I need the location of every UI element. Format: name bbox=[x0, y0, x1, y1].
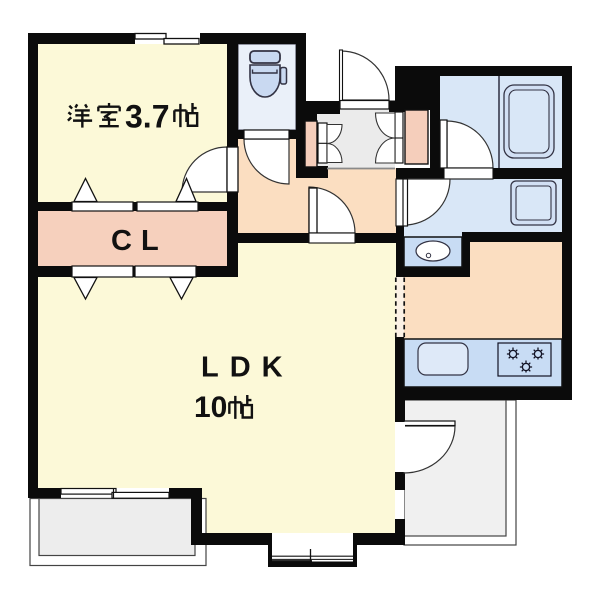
svg-text:3.7: 3.7 bbox=[125, 99, 169, 135]
svg-text:10: 10 bbox=[194, 391, 227, 424]
svg-text:LDK: LDK bbox=[201, 352, 294, 384]
svg-text:CL: CL bbox=[111, 225, 168, 257]
